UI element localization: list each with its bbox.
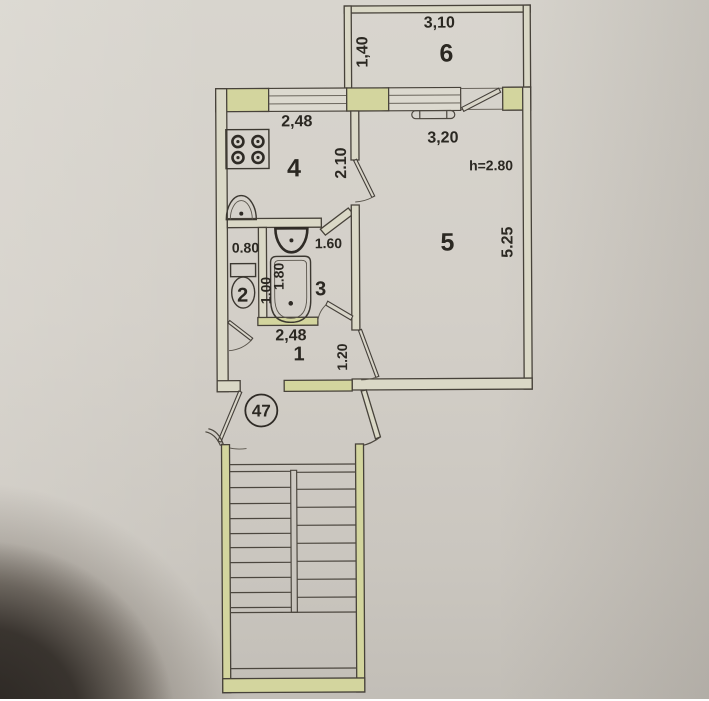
stair-landing-bottom-edge: [231, 668, 357, 669]
wc-door-leaf: [228, 320, 253, 340]
kitchen-door: [354, 159, 375, 202]
radiator: [412, 110, 455, 118]
right-outer-wall: [523, 87, 533, 389]
chamfer-wall: [320, 208, 353, 235]
ceiling-height-label: h=2.80: [469, 157, 513, 173]
stair-landing-edge: [230, 612, 356, 613]
bathroom-door-leaf: [326, 301, 353, 320]
balcony-top-wall: [344, 5, 530, 13]
kitchen-room-number: 4: [287, 154, 301, 182]
hall-livingroom-wall-upper: [351, 205, 360, 330]
stair-mouth-left-flare: [205, 432, 220, 446]
hallway-bottom-wall-left: [217, 381, 240, 392]
stairwell-bottom-wall: [223, 678, 365, 693]
balcony-door-leaf: [462, 88, 501, 111]
bathroom-width-label: 1.60: [315, 235, 343, 251]
kitchen-door-leaf: [354, 159, 375, 197]
kitchen-width-label: 2,48: [281, 113, 312, 130]
floor-plan-drawing: 47 3,10 1,40 6 2,48 2.10 4 3,20 h=2.80 5…: [0, 0, 709, 701]
apartment-number-badge: 47: [245, 394, 277, 426]
top-wall: [216, 87, 531, 113]
bathtub-length-label: 1.80: [271, 263, 287, 291]
wc-door: [228, 320, 253, 350]
livingroom-door: [358, 329, 378, 380]
stairwell-right-wall: [355, 444, 364, 692]
hallway-bottom-wall-pier: [284, 380, 352, 391]
balcony-left-wall: [344, 6, 351, 88]
stair-mouth-right-wall: [361, 390, 380, 439]
apartment-number: 47: [252, 401, 271, 420]
entrance-door-leaf: [218, 391, 242, 442]
hallway-door-width-label: 1.20: [334, 343, 350, 371]
stairwell: [205, 390, 382, 693]
wc-width-label: 0.80: [232, 239, 260, 255]
bathroom-door: [318, 301, 353, 321]
living-room-window: [389, 87, 461, 110]
kitchen-livingroom-wall: [351, 111, 359, 160]
stair-steps: [230, 464, 357, 669]
balcony-depth-label: 1,40: [354, 36, 371, 67]
hallway-room-number: 1: [293, 343, 304, 365]
kitchen-window: [269, 88, 347, 111]
wall-pier: [347, 88, 389, 111]
livingroom-room-number: 5: [440, 228, 454, 256]
wc-room-number: 2: [237, 285, 248, 307]
bathroom-sink: [275, 228, 307, 252]
hallway-width-label: 2,48: [275, 327, 306, 344]
kitchen-sink: [226, 196, 256, 220]
living-room-bottom-wall: [352, 378, 532, 390]
livingroom-length-label: 5.25: [499, 226, 516, 257]
livingroom-door-leaf: [358, 329, 378, 377]
kitchen-depth-label: 2.10: [333, 147, 350, 178]
balcony-width-label: 3,10: [424, 14, 455, 31]
bathroom-room-number: 3: [315, 278, 326, 300]
balcony-right-wall: [523, 5, 530, 87]
stove: [226, 129, 269, 168]
balcony-room-number: 6: [439, 39, 453, 67]
balcony-door-opening: [461, 88, 503, 111]
stairwell-left-wall: [221, 445, 230, 693]
stair-stringer: [291, 470, 298, 612]
livingroom-width-label: 3,20: [427, 129, 458, 146]
scanned-floor-plan-photo: 47 3,10 1,40 6 2,48 2.10 4 3,20 h=2.80 5…: [0, 0, 709, 699]
